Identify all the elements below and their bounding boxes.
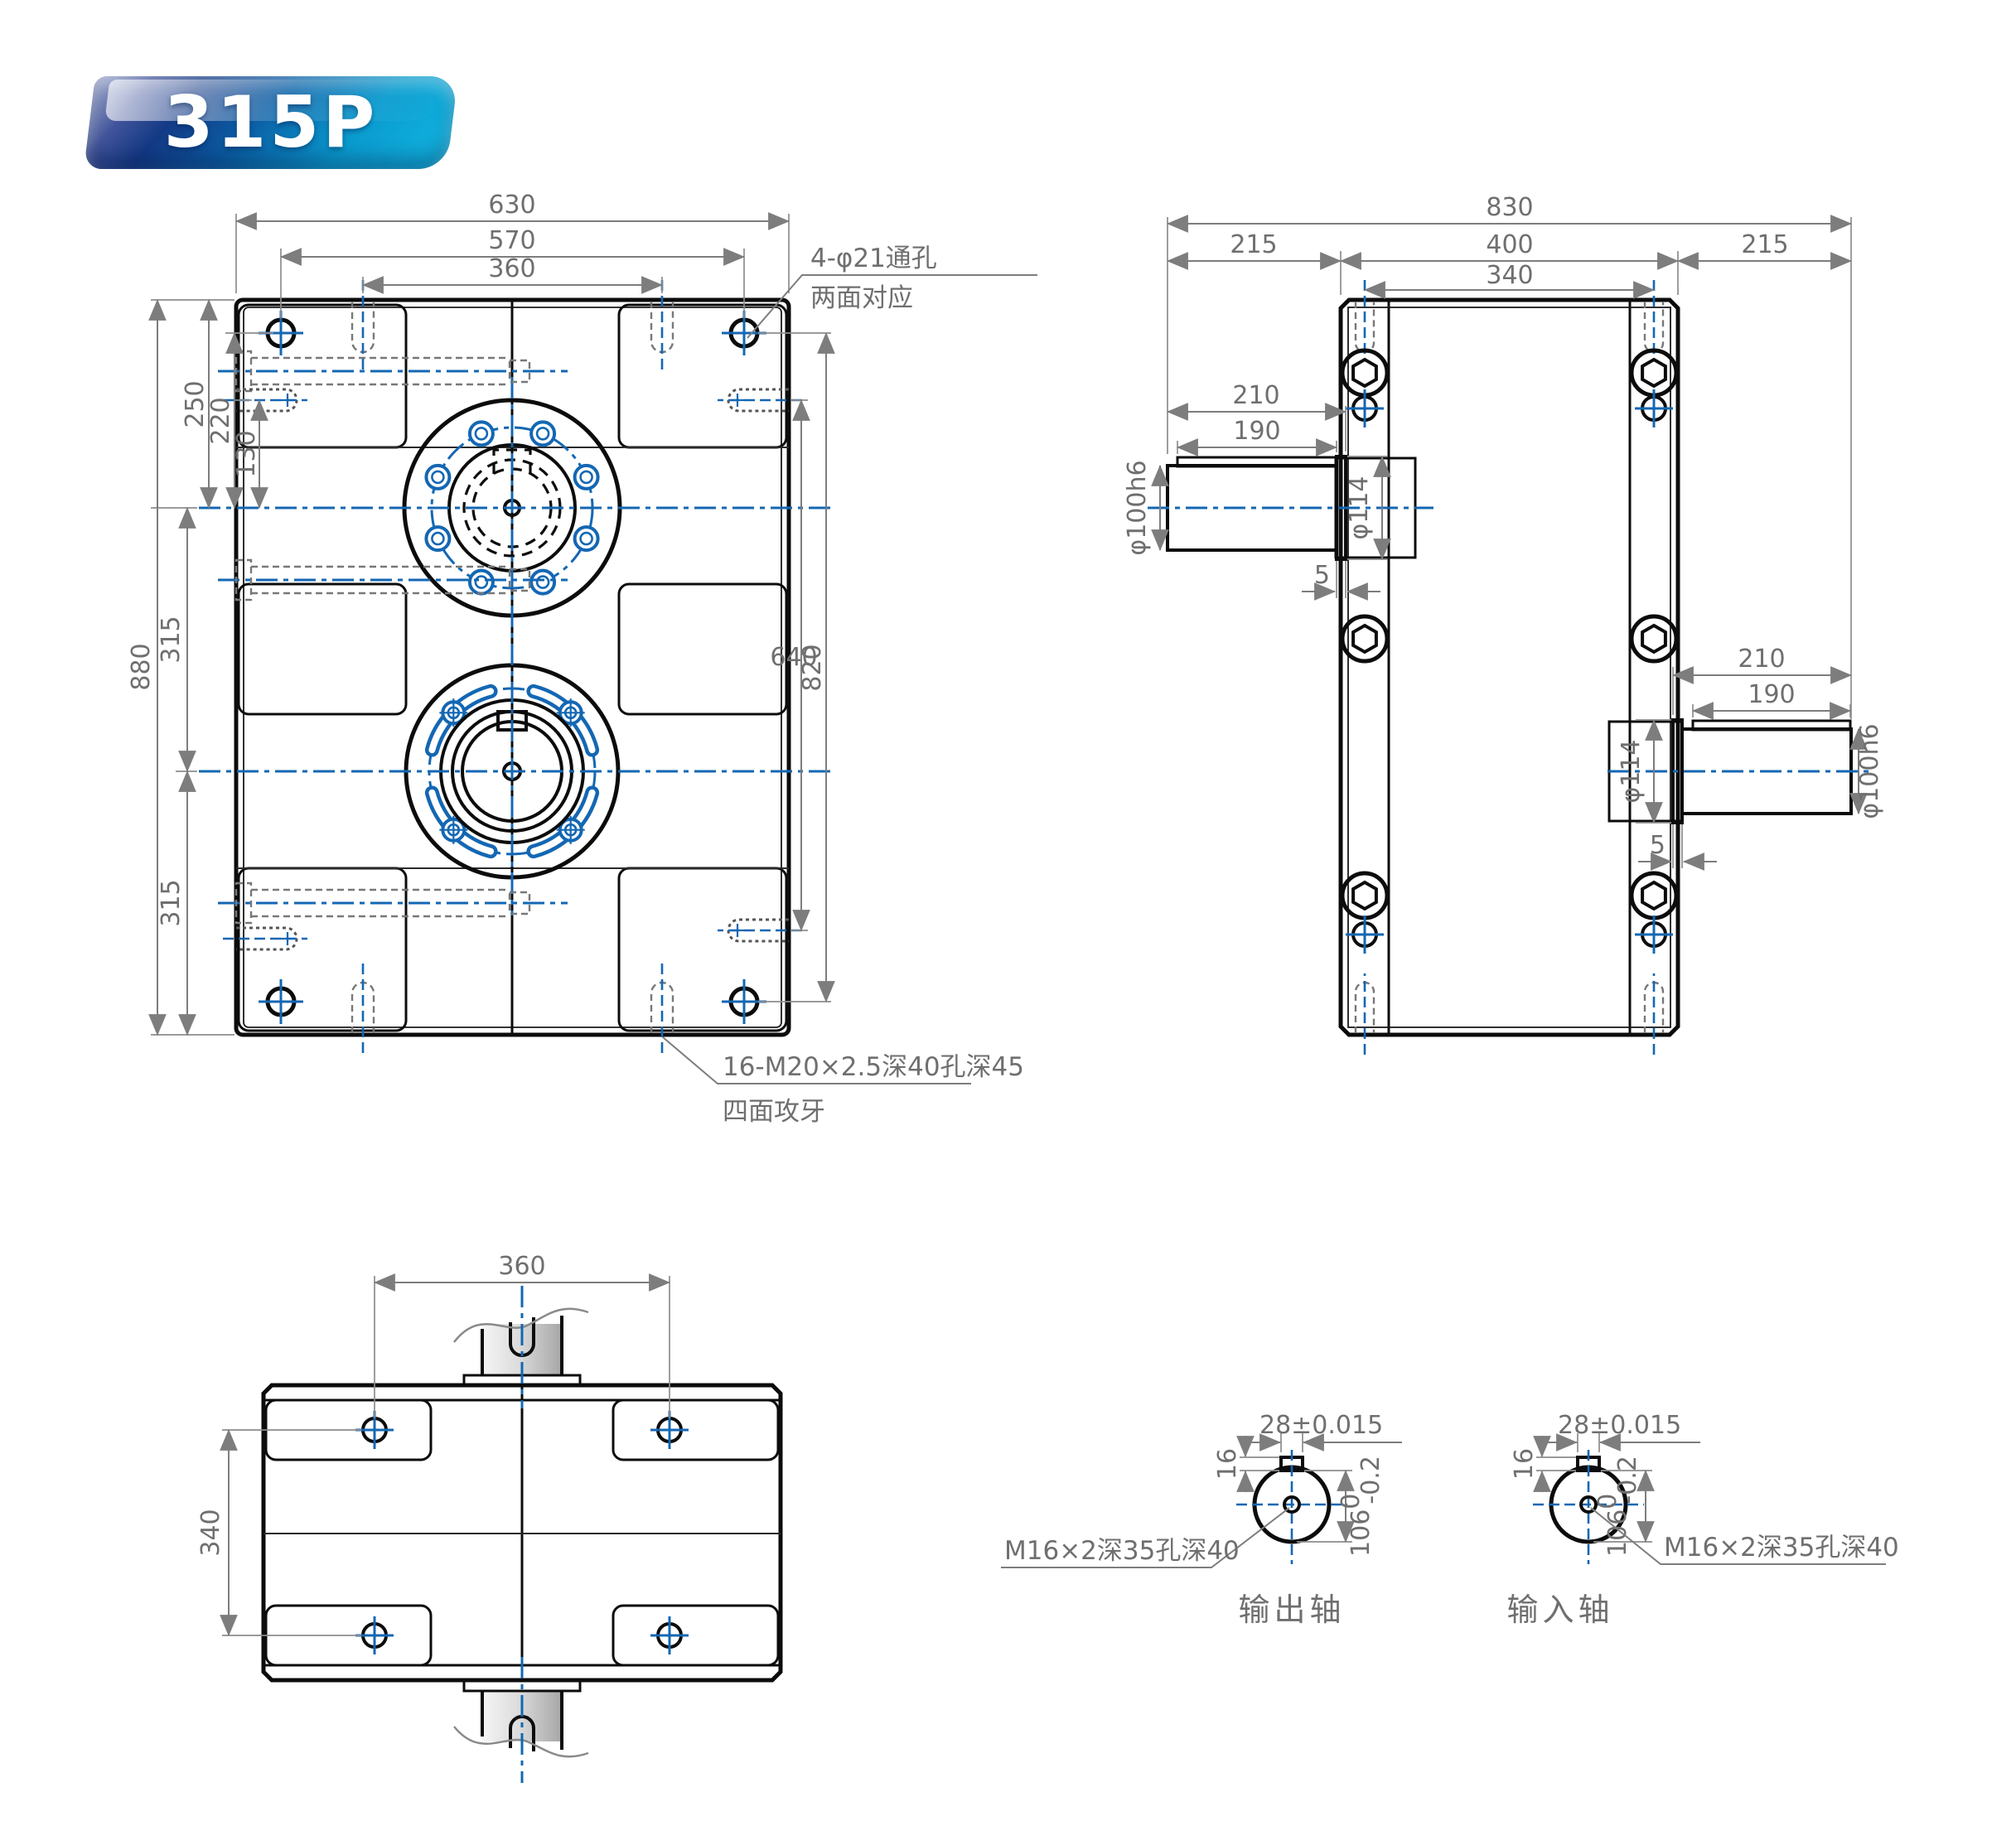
note-tapped-line1: 16-M20×2.5深40孔深45 [723, 1052, 1024, 1082]
dim-side-215-left: 215 [1230, 230, 1277, 259]
dim-output-190: 190 [1748, 680, 1795, 709]
dim-front-315-bottom: 315 [157, 879, 186, 926]
side-right-strip-hardware [1632, 280, 1676, 1055]
bottom-top-stub [454, 1286, 588, 1408]
side-input-shaft [1148, 456, 1433, 559]
dim-front-570: 570 [488, 226, 535, 255]
dim-bottom-360: 360 [498, 1252, 545, 1281]
bottom-dimensions: 360 340 [196, 1252, 670, 1635]
front-dimensions: 630 570 360 880 315 315 250 220 130 640 … [127, 191, 831, 1035]
drill-hole-icon [1356, 973, 1374, 1055]
dim-front-130: 130 [232, 430, 261, 477]
input-shaft-caption: 输入轴 [1506, 1592, 1613, 1628]
dim-front-820: 820 [798, 644, 827, 691]
dim-front-630: 630 [488, 191, 535, 220]
note-through-holes-line2: 两面对应 [810, 283, 913, 313]
cross-hole-icon [1346, 915, 1384, 954]
dim-output-key-depth: 16 [1213, 1448, 1242, 1480]
drawing-sheet: 630 570 360 880 315 315 250 220 130 640 … [0, 0, 2016, 1821]
note-output-tap: M16×2深35孔深40 [1004, 1536, 1240, 1566]
bolt-hole-icon [531, 571, 554, 594]
front-leader-notes: 4-φ21通孔 两面对应 16-M20×2.5深40孔深45 四面攻牙 [663, 244, 1037, 1127]
bolt-hole-icon [531, 422, 554, 445]
dim-input-190: 190 [1233, 417, 1280, 446]
dim-side-400: 400 [1486, 230, 1533, 259]
output-shaft-caption: 输出轴 [1238, 1592, 1345, 1628]
cross-hole-icon [650, 1616, 689, 1654]
side-output-shaft [1607, 720, 1874, 823]
dim-output-dia: φ100h6 [1855, 723, 1884, 819]
dim-output-key-width: 28±0.015 [1259, 1411, 1383, 1440]
dim-front-360: 360 [488, 254, 535, 283]
drawing-page: 315P [0, 0, 2016, 1821]
dim-input-dia: φ100h6 [1123, 460, 1152, 555]
dim-output-210: 210 [1738, 645, 1785, 674]
front-view: 630 570 360 880 315 315 250 220 130 640 … [127, 191, 1037, 1127]
dim-output-boss-dia: φ114 [1617, 739, 1646, 803]
bolt-hole-icon [470, 422, 493, 445]
hidden-stud-icon [218, 883, 568, 923]
input-shaft-section: 28±0.015 16 1060-0.2 M16×2深35孔深40 输入轴 [1506, 1411, 1898, 1628]
cross-hole-icon [1346, 389, 1384, 427]
hex-bolt-icon [1632, 350, 1676, 395]
hex-bolt-icon [1342, 616, 1387, 661]
dim-side-340: 340 [1486, 261, 1533, 290]
note-input-tap: M16×2深35孔深40 [1664, 1533, 1899, 1563]
hex-bolt-icon [1632, 873, 1676, 918]
side-body [1341, 300, 1678, 1035]
dim-output-5: 5 [1650, 831, 1665, 860]
note-tapped-line2: 四面攻牙 [723, 1097, 825, 1127]
bolt-hole-icon [470, 571, 493, 594]
output-shaft-section: 28±0.015 16 1060-0.2 M16×2深35孔深40 输出轴 [1001, 1411, 1402, 1628]
bolt-hole-icon [426, 466, 449, 489]
hidden-stud-icon [218, 351, 568, 391]
hidden-stud-icon [218, 560, 568, 600]
note-through-holes-line1: 4-φ21通孔 [810, 244, 937, 273]
bolt-hole-icon [575, 466, 598, 489]
dim-side-215-right: 215 [1741, 230, 1788, 259]
dim-front-220: 220 [206, 397, 235, 444]
through-hole-icon [259, 979, 303, 1024]
dim-input-boss-dia: φ114 [1345, 476, 1374, 539]
dim-bottom-340: 340 [196, 1509, 225, 1556]
bottom-view: 360 340 [196, 1252, 781, 1783]
dim-front-315-mid: 315 [157, 616, 186, 663]
hex-bolt-icon [1342, 350, 1387, 395]
side-body-inner-edge [1348, 307, 1670, 1027]
dim-front-880: 880 [127, 643, 156, 690]
hex-bolt-icon [1632, 616, 1676, 661]
cross-hole-icon [1635, 915, 1673, 954]
bolt-hole-icon [575, 527, 598, 550]
drill-hole-icon [1645, 973, 1663, 1055]
dim-input-210: 210 [1232, 381, 1279, 410]
cross-hole-icon [1635, 389, 1673, 427]
dim-input-5: 5 [1314, 561, 1330, 590]
hex-bolt-icon [1342, 873, 1387, 918]
side-left-strip-hardware [1342, 280, 1387, 1055]
dim-side-830: 830 [1486, 193, 1533, 222]
front-centerlines [199, 377, 833, 915]
bottom-bottom-stub [454, 1657, 588, 1783]
bolt-hole-icon [426, 527, 449, 550]
dim-input-key-width: 28±0.015 [1558, 1411, 1681, 1440]
side-dimensions: 830 215 400 215 340 210 190 φ100h6 φ114 [1123, 193, 1884, 868]
dim-front-250: 250 [181, 380, 210, 427]
dim-input-key-depth: 16 [1510, 1448, 1539, 1480]
side-view: 830 215 400 215 340 210 190 φ100h6 φ114 [1123, 193, 1884, 1055]
